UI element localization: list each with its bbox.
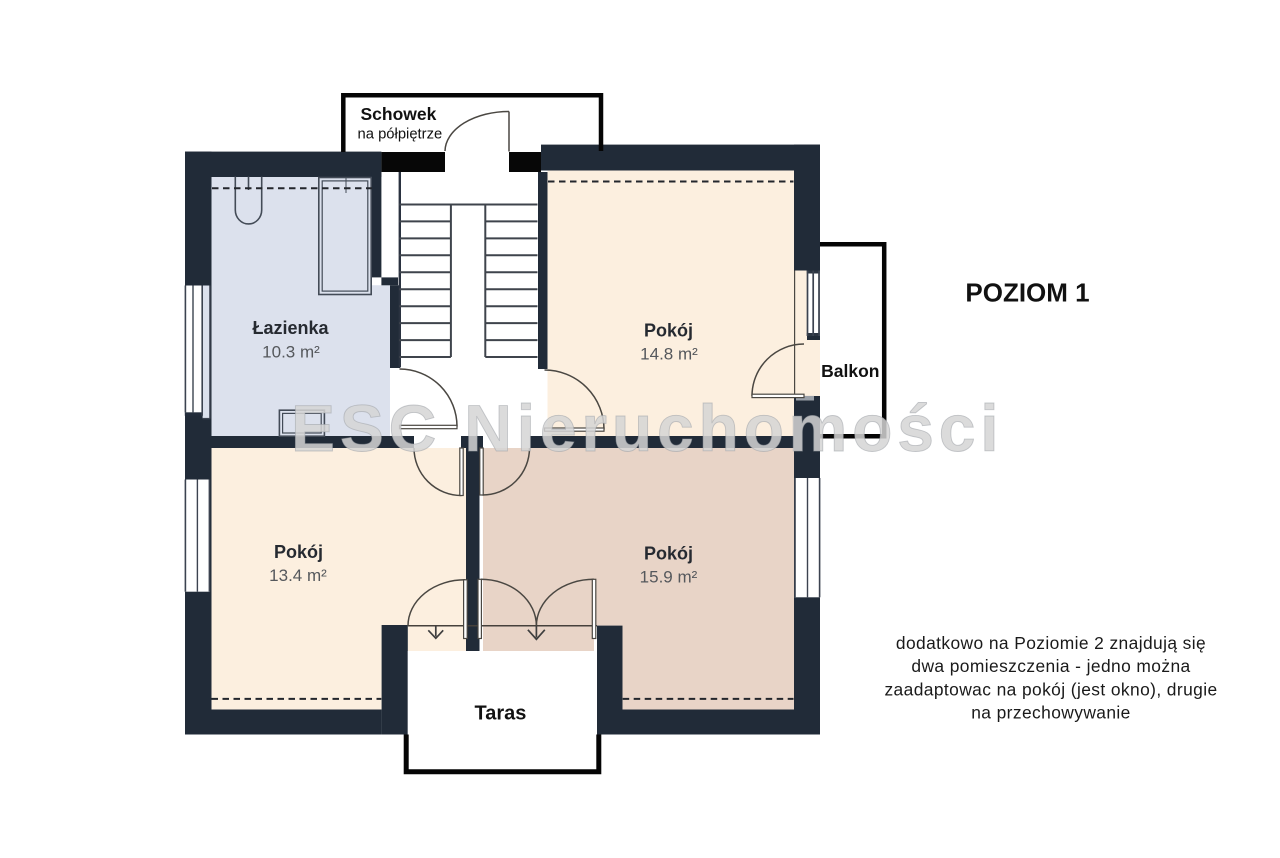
svg-text:na półpiętrze: na półpiętrze [358,126,443,142]
svg-text:15.9 m²: 15.9 m² [640,567,698,586]
svg-text:Taras: Taras [475,702,527,724]
svg-text:Pokój: Pokój [274,542,323,562]
svg-text:Schowek: Schowek [361,104,437,124]
svg-text:Balkon: Balkon [821,361,879,381]
svg-text:Pokój: Pokój [644,543,693,563]
svg-text:dodatkowo na Poziomie 2 znajdu: dodatkowo na Poziomie 2 znajdują się [896,633,1206,653]
svg-text:POZIOM 1: POZIOM 1 [965,278,1089,308]
svg-text:dwa pomieszczenia - jedno możn: dwa pomieszczenia - jedno można [911,656,1190,676]
svg-text:zaadaptowac na pokój (jest okn: zaadaptowac na pokój (jest okno), drugie [884,679,1217,699]
svg-text:Pokój: Pokój [644,321,693,341]
svg-text:14.8 m²: 14.8 m² [640,345,698,364]
svg-text:ESC Nieruchomości: ESC Nieruchomości [291,391,1003,465]
svg-text:Łazienka: Łazienka [252,318,329,338]
svg-text:na przechowywanie: na przechowywanie [971,702,1131,722]
svg-text:13.4 m²: 13.4 m² [269,566,327,585]
svg-text:10.3 m²: 10.3 m² [262,343,320,362]
